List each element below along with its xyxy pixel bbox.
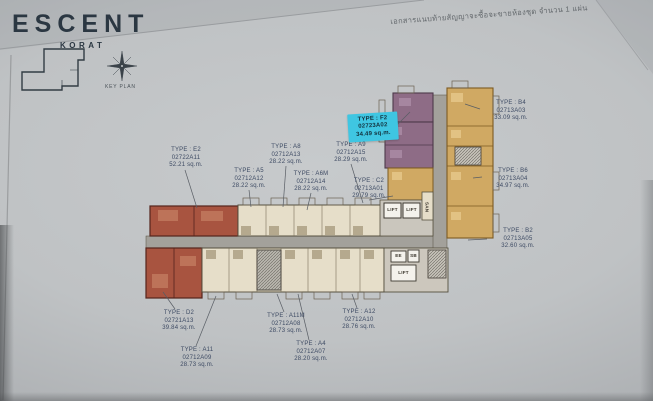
- units-beige-bottom: [202, 248, 384, 292]
- unit-label-a4: TYPE : A4 02712A07 28.20 sq.m.: [281, 341, 341, 364]
- unit-area: 34.97 sq.m.: [483, 183, 543, 191]
- unit-type: TYPE : B6: [483, 168, 543, 176]
- unit-type: TYPE : D2: [149, 310, 209, 318]
- units-red-bottom: [146, 248, 202, 298]
- unit-label-b2: TYPE : B2 02713A05 32.60 sq.m.: [488, 228, 548, 251]
- unit-code: 02713A03: [481, 108, 541, 116]
- unit-type: TYPE : A9: [321, 142, 381, 150]
- unit-label-b6: TYPE : B6 02713A04 34.97 sq.m.: [483, 168, 543, 191]
- unit-area: 28.22 sq.m.: [219, 183, 279, 191]
- unit-area: 32.60 sq.m.: [488, 243, 548, 251]
- unit-label-a8: TYPE : A8 02712A13 28.22 sq.m.: [256, 144, 316, 167]
- unit-type: TYPE : A8: [256, 144, 316, 152]
- unit-code: 02712A08: [256, 321, 316, 329]
- photo-shadow-right: [640, 180, 653, 401]
- unit-code: 02712A15: [321, 150, 381, 158]
- corridor-vertical: [433, 95, 447, 250]
- lift-label-2: LIFT: [403, 208, 420, 213]
- unit-type: TYPE : B2: [488, 228, 548, 236]
- photo-shadow-bottom: [0, 392, 653, 401]
- unit-area: 28.29 sq.m.: [321, 157, 381, 165]
- unit-code: 02713A01: [339, 186, 399, 194]
- unit-label-a11: TYPE : A11 02712A09 28.73 sq.m.: [167, 347, 227, 370]
- unit-code: 02721A13: [149, 318, 209, 326]
- key-plan-label: KEY PLAN: [105, 84, 136, 90]
- unit-area: 39.84 sq.m.: [149, 325, 209, 333]
- unit-type: TYPE : A11: [167, 347, 227, 355]
- unit-label-c2: TYPE : C2 02713A01 29.79 sq.m.: [339, 178, 399, 201]
- san-room-label: SAN: [424, 196, 429, 218]
- unit-area: 28.73 sq.m.: [167, 362, 227, 370]
- ee-room-label: EE: [391, 254, 406, 259]
- unit-code: 02712A09: [167, 355, 227, 363]
- unit-area: 28.73 sq.m.: [256, 328, 316, 336]
- unit-area: 28.22 sq.m.: [256, 159, 316, 167]
- unit-code: 02712A07: [281, 349, 341, 357]
- unit-code: 02712A13: [256, 152, 316, 160]
- unit-label-a6m: TYPE : A6M 02712A14 28.22 sq.m.: [281, 171, 341, 194]
- unit-code: 02722A11: [156, 155, 216, 163]
- unit-type: TYPE : A11M: [256, 313, 316, 321]
- unit-code: 02712A14: [281, 179, 341, 187]
- unit-code: 02713A04: [483, 176, 543, 184]
- unit-label-e2: TYPE : E2 02722A11 52.21 sq.m.: [156, 147, 216, 170]
- stair-core: [428, 250, 446, 278]
- unit-label-a12: TYPE : A12 02712A10 28.76 sq.m.: [329, 309, 389, 332]
- units-red-top: [150, 206, 238, 236]
- unit-type: TYPE : A4: [281, 341, 341, 349]
- key-plan-outline: [22, 49, 84, 90]
- unit-label-b4: TYPE : B4 02713A03 33.09 sq.m.: [481, 100, 541, 123]
- unit-area: 33.09 sq.m.: [481, 115, 541, 123]
- unit-label-d2: TYPE : D2 02721A13 39.84 sq.m.: [149, 310, 209, 333]
- unit-label-f2-highlighted: TYPE : F2 02723A02 34.49 sq.m.: [347, 111, 399, 142]
- unit-area: 28.76 sq.m.: [329, 324, 389, 332]
- brand-location: KORAT: [60, 41, 105, 50]
- unit-area: 28.22 sq.m.: [281, 186, 341, 194]
- unit-type: TYPE : C2: [339, 178, 399, 186]
- corridor-horizontal: [146, 236, 438, 248]
- unit-code: 02712A12: [219, 176, 279, 184]
- sb-room-label: SB: [408, 254, 419, 259]
- floorplan-sheet-photo: ESCENT KORAT KEY PLAN เอกสารแนบท้ายสัญญา…: [0, 0, 653, 401]
- unit-type: TYPE : A6M: [281, 171, 341, 179]
- stair-right-wing: [455, 147, 481, 165]
- unit-type: TYPE : A12: [329, 309, 389, 317]
- unit-type: TYPE : A5: [219, 168, 279, 176]
- unit-type: TYPE : E2: [156, 147, 216, 155]
- lift-label-3: LIFT: [391, 271, 416, 276]
- unit-area: 52.21 sq.m.: [156, 162, 216, 170]
- unit-type: TYPE : B4: [481, 100, 541, 108]
- unit-area: 29.79 sq.m.: [339, 193, 399, 201]
- brand-logo: ESCENT: [12, 10, 149, 39]
- photo-shadow-left: [0, 225, 14, 401]
- unit-code: 02712A10: [329, 317, 389, 325]
- unit-area: 28.20 sq.m.: [281, 356, 341, 364]
- unit-label-a11m: TYPE : A11M 02712A08 28.73 sq.m.: [256, 313, 316, 336]
- unit-label-a5: TYPE : A5 02712A12 28.22 sq.m.: [219, 168, 279, 191]
- units-beige-top: [238, 205, 382, 236]
- unit-code: 02713A05: [488, 236, 548, 244]
- lift-label-1: LIFT: [384, 208, 401, 213]
- unit-label-a9: TYPE : A9 02712A15 28.29 sq.m.: [321, 142, 381, 165]
- compass-icon: [107, 51, 137, 81]
- stair-bottom-row: [257, 250, 281, 290]
